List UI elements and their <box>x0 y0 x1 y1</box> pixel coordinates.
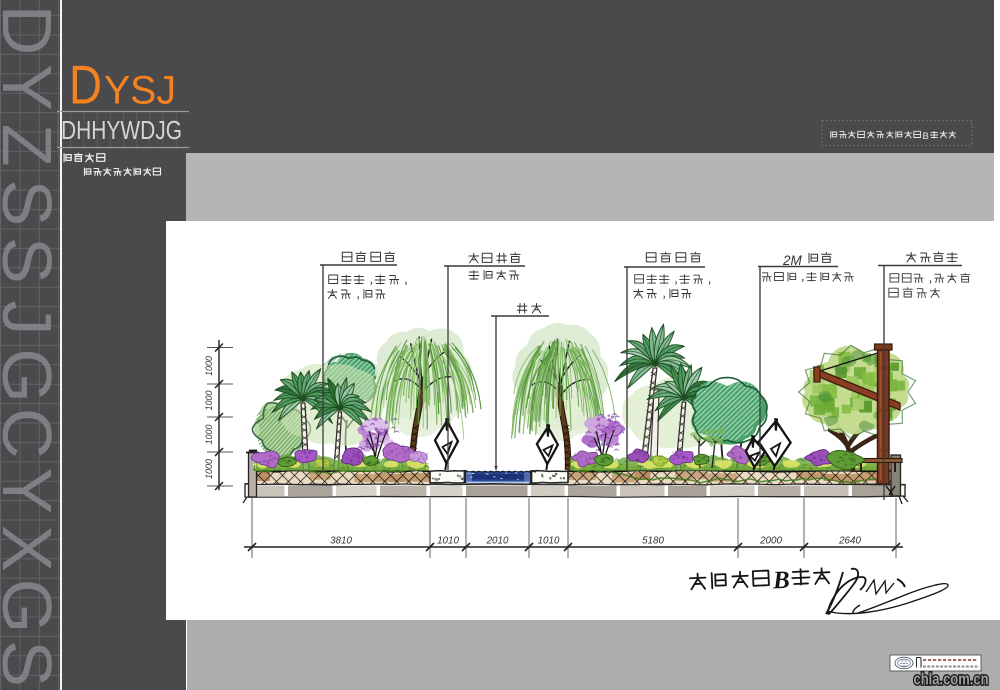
svg-text:1010: 1010 <box>437 536 459 547</box>
svg-text:2010: 2010 <box>486 536 509 547</box>
svg-text:chla.com.cn: chla.com.cn <box>914 671 989 689</box>
svg-text:J: J <box>0 301 66 336</box>
svg-text:D: D <box>0 5 66 56</box>
svg-text:1010: 1010 <box>538 536 560 547</box>
svg-text:YSJ: YSJ <box>104 69 176 113</box>
svg-text:D: D <box>69 54 102 116</box>
svg-text:Z: Z <box>0 124 66 167</box>
svg-text:2640: 2640 <box>838 536 861 547</box>
svg-text:G: G <box>0 579 66 633</box>
svg-text:5180: 5180 <box>642 536 664 547</box>
svg-text:Y: Y <box>0 467 66 514</box>
svg-text:B: B <box>771 567 790 595</box>
svg-text:Y: Y <box>0 64 66 111</box>
svg-text:1000: 1000 <box>204 459 214 479</box>
svg-text:C: C <box>0 408 66 459</box>
svg-text:G: G <box>0 348 66 402</box>
svg-text:1000: 1000 <box>204 390 214 410</box>
svg-text:S: S <box>0 640 66 687</box>
svg-text:S: S <box>0 237 66 284</box>
svg-text:B: B <box>923 131 929 142</box>
svg-text:2000: 2000 <box>759 536 782 547</box>
svg-text:2M: 2M <box>782 253 803 268</box>
svg-text:X: X <box>0 525 66 572</box>
svg-text:S: S <box>0 179 66 226</box>
svg-text:DHHYWDJG: DHHYWDJG <box>61 117 182 145</box>
svg-text:1000: 1000 <box>204 356 214 376</box>
svg-text:3810: 3810 <box>330 536 352 547</box>
svg-text:1000: 1000 <box>204 424 214 444</box>
